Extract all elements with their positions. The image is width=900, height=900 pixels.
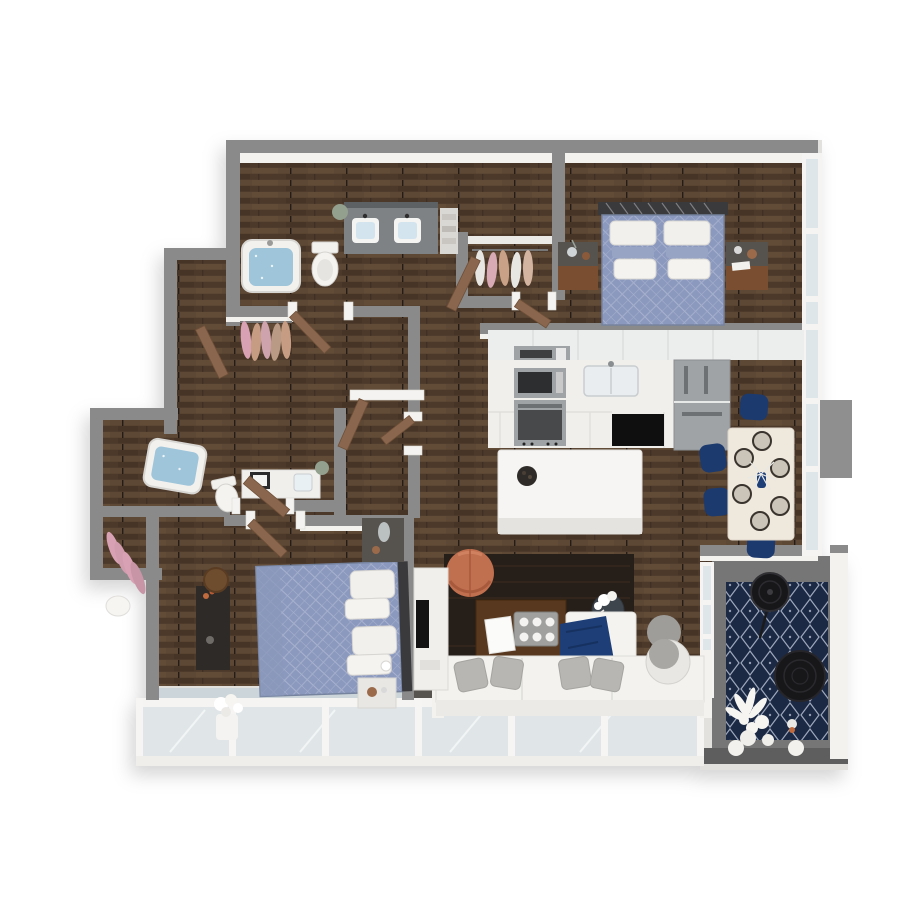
microwave [514,368,566,398]
north-wall-face [238,153,818,163]
wall-oven [514,400,566,446]
corridor-wall-lower [408,448,420,518]
railing-bottom-rail [136,756,704,766]
terrace-slab-edge [700,748,848,764]
book [485,616,515,653]
coffee-table [476,600,566,658]
closet-door-frame [350,390,424,400]
vanity-plant [332,204,348,220]
toilet-1 [312,242,338,286]
kitchen-sink [584,361,638,396]
wing-north-cap [90,408,178,420]
bath2-south-cap [102,506,230,517]
nightstand-left [558,240,598,290]
refrigerator [674,360,730,450]
white-basket [106,596,130,616]
floor-plan-render [0,0,900,900]
terrace-east-wall-cap [830,545,848,553]
wing-west-wall [90,408,103,580]
nook-south-wall [456,296,516,308]
round-stool [204,568,228,592]
dishwasher [612,414,664,446]
nightstand-right [726,242,768,290]
bedroom2-west-wall [146,516,159,700]
nightstand-north [362,518,404,562]
wicker-chair [775,651,825,701]
exterior-ledge [820,400,852,478]
copper-pouf [446,549,494,597]
hall-west-wall [164,248,177,434]
cylinder-table [646,639,690,684]
dresser [196,586,230,670]
north-wall [238,140,818,153]
terrace-east-wall [830,545,848,759]
bath1-south-wall-a [226,306,296,317]
bath2-door-wall-b [290,500,346,512]
terrace [700,545,848,764]
bathtub-2 [142,438,207,495]
bath1-west-wall [226,140,240,326]
bath2-east-wall [334,408,346,516]
east-window-wall [802,153,852,556]
fruit-bowl [517,466,537,486]
tv [416,600,429,648]
kitchen-island [498,450,642,534]
hall-closet-clothes [239,321,292,362]
mirror [344,202,438,209]
bed-primary [598,202,728,325]
tv-console [414,568,448,690]
bath1-south-wall-b [348,306,408,317]
bathtub-1 [242,240,300,292]
bed-2 [256,561,412,696]
floor-plan-stage [0,0,900,900]
